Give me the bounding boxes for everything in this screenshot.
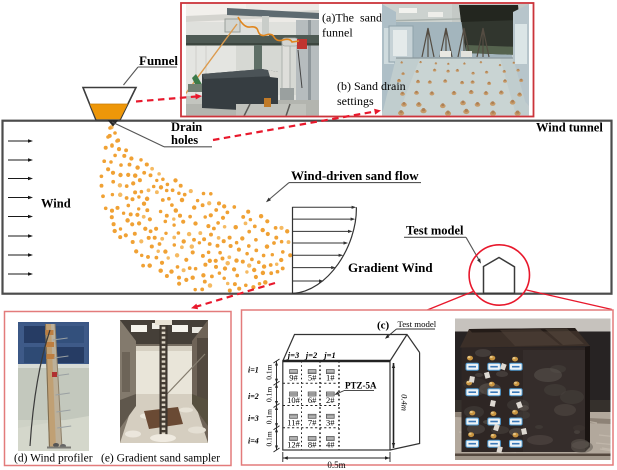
svg-text:funnel: funnel (322, 26, 353, 40)
svg-text:0.4m: 0.4m (400, 394, 410, 411)
svg-text:(b) Sand drain: (b) Sand drain (337, 79, 406, 93)
svg-text:i=3: i=3 (248, 414, 259, 423)
svg-text:Wind: Wind (41, 197, 71, 211)
svg-text:11#: 11# (287, 417, 300, 427)
svg-text:4#: 4# (326, 440, 335, 450)
svg-text:8#: 8# (308, 440, 317, 450)
svg-text:0.1m: 0.1m (265, 431, 274, 446)
svg-text:(e) Gradient sand sampler: (e) Gradient sand sampler (101, 453, 220, 465)
svg-text:0.5m: 0.5m (327, 460, 345, 470)
svg-text:Test model: Test model (406, 224, 464, 238)
svg-text:Wind-driven sand flow: Wind-driven sand flow (291, 168, 419, 183)
svg-text:Funnel: Funnel (139, 53, 178, 68)
svg-text:(d) Wind profiler: (d) Wind profiler (14, 453, 93, 465)
svg-text:0.1m: 0.1m (265, 387, 274, 402)
svg-text:(a)The sand: (a)The sand (322, 11, 382, 25)
svg-text:PTZ-5A: PTZ-5A (345, 381, 377, 391)
svg-text:12#: 12# (287, 440, 301, 450)
svg-text:i=4: i=4 (248, 437, 259, 446)
svg-text:holes: holes (171, 133, 198, 147)
svg-text:6#: 6# (308, 395, 317, 405)
svg-text:settings: settings (337, 94, 374, 108)
svg-text:0.1m: 0.1m (265, 409, 274, 424)
svg-text:0.1m: 0.1m (265, 364, 274, 379)
svg-text:j=2: j=2 (304, 350, 318, 360)
svg-text:Test model: Test model (398, 319, 437, 329)
svg-text:2#: 2# (326, 395, 335, 405)
svg-text:3#: 3# (326, 417, 335, 427)
svg-text:7#: 7# (308, 417, 317, 427)
svg-text:i=2: i=2 (248, 392, 259, 401)
svg-text:Wind tunnel: Wind tunnel (536, 120, 603, 134)
svg-text:Drain: Drain (171, 120, 202, 134)
svg-text:9#: 9# (289, 373, 298, 383)
svg-text:j=1: j=1 (322, 350, 335, 360)
svg-text:Gradient Wind: Gradient Wind (348, 260, 433, 275)
svg-text:i=1: i=1 (248, 366, 259, 375)
svg-text:j=3: j=3 (286, 350, 300, 360)
svg-text:10#: 10# (287, 395, 301, 405)
svg-text:1#: 1# (326, 373, 335, 383)
svg-text:5#: 5# (308, 373, 317, 383)
svg-text:(c): (c) (377, 320, 390, 332)
